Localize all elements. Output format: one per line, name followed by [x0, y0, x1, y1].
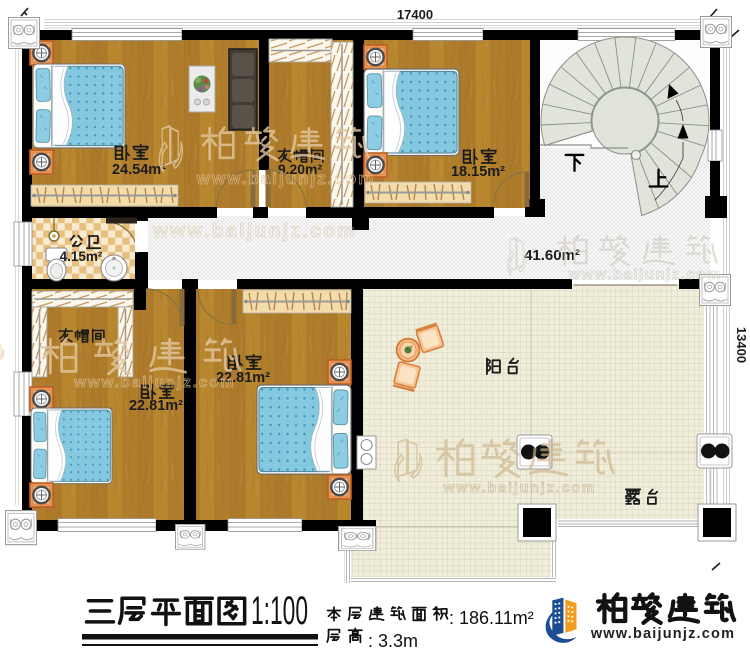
svg-text:www.baijunjz.com: www.baijunjz.com — [196, 169, 376, 188]
svg-text:www.baijunjz.com: www.baijunjz.com — [443, 479, 597, 495]
svg-text:: 3.3m: : 3.3m — [368, 631, 418, 651]
svg-text:: 186.11m²: : 186.11m² — [449, 608, 534, 628]
svg-text:www.baijunjz.com: www.baijunjz.com — [590, 626, 735, 642]
svg-text:13400: 13400 — [734, 327, 749, 363]
svg-text:1:100: 1:100 — [251, 589, 308, 633]
svg-text:www.baijunjz.com: www.baijunjz.com — [152, 221, 357, 242]
svg-text:22.81m²: 22.81m² — [129, 398, 183, 414]
svg-text:17400: 17400 — [397, 7, 433, 22]
svg-text:41.60m²: 41.60m² — [524, 247, 580, 264]
svg-text:www.baijunjz.com: www.baijunjz.com — [567, 266, 721, 283]
svg-text:www.baijunjz.com: www.baijunjz.com — [73, 374, 235, 391]
svg-text:18.15m²: 18.15m² — [451, 164, 505, 180]
svg-text:4.15m²: 4.15m² — [60, 249, 103, 264]
svg-text:24.54m²: 24.54m² — [112, 162, 166, 178]
